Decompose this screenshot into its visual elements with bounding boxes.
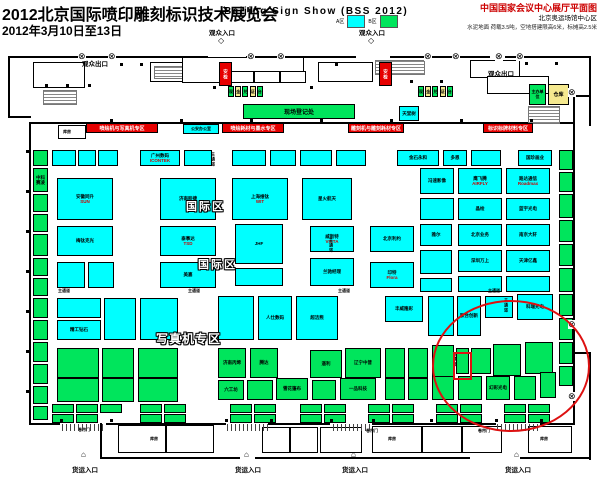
booth: 超洁熊 [296,296,338,340]
booth [33,406,48,420]
booth [33,194,48,212]
structural-column [120,63,123,66]
zone-banner: 雕刻机与雕刻耗材专区 [348,123,404,133]
booth [506,276,550,292]
booth [300,150,332,166]
booth [254,404,276,413]
structural-column [26,230,29,233]
structural-column [26,150,29,153]
structural-column [26,390,29,393]
booth [230,404,252,413]
structural-column [140,63,143,66]
booth: 天津亿鑫 [506,250,550,272]
booth [57,378,99,402]
registration-desk: 兑 [242,86,248,97]
door-symbol-icon: ⊗ [78,52,86,61]
structural-column [66,84,69,87]
structural-column [330,419,333,422]
registration-desk: 金 [425,86,431,97]
booth: 六工坊 [218,380,244,400]
registration-desk: 金 [235,86,241,97]
door-symbol-icon: ⊗ [108,52,116,61]
structural-column [525,62,528,65]
aisle-label: 主通道 [210,152,216,167]
booth [33,214,48,232]
visitor-exit-label: 观众出口 [488,68,514,78]
security-check: 安检 [219,62,232,86]
booth [52,150,76,166]
wall [370,457,470,459]
room [254,71,280,83]
visitor-exit-label: 观众出口 [82,58,108,68]
booth: 星火航天 [302,178,352,220]
booth: 金石永和 [397,150,439,166]
booth [471,150,501,166]
freight-entrance-label: 货运入口 [331,464,379,474]
venue-subtitle: 北京奥运场馆中心区 [539,12,598,22]
door-symbol-icon: ⊗ [277,52,285,61]
aisle-label: 主通道 [488,288,500,294]
room [372,426,422,453]
entrance-diamond-icon: ◇ [218,37,224,45]
booth: 冯速影像 [420,168,454,194]
structural-column [390,119,393,122]
door-symbol-icon: ⊗ [247,52,255,61]
structural-column [320,119,323,122]
booth [102,378,134,402]
booth: 多恩 [443,150,467,166]
booth [232,150,266,166]
booth: 雅尔 [420,224,452,246]
structural-column [110,419,113,422]
room [280,71,306,83]
booth [164,414,186,423]
booth: 印特Flora [370,262,414,288]
booth [102,348,134,378]
registration-desk: 证 [250,86,256,97]
booth [559,268,573,292]
booth [559,220,573,242]
onsite-registration: 现场登记处 [243,104,355,119]
booth [300,404,322,413]
booth [78,150,96,166]
legend-b-label: B区 [368,18,376,25]
wall [100,457,240,459]
zone-label-photo-printer: 写真机专区 [156,330,221,347]
aisle-label: 主通道 [328,238,334,253]
loading-ramp [333,424,373,431]
structural-column [335,63,338,66]
door-symbol-icon: ⊗ [516,52,524,61]
booth [559,194,573,218]
wall [29,423,60,425]
booth [324,414,346,423]
booth [138,378,178,402]
booth [436,414,458,423]
booth [76,414,98,423]
door-symbol-icon: ⊗ [568,88,576,97]
booth: 鹰飞腾AIRFLY [458,168,502,194]
booth: 路达通信Roadmax [506,168,550,194]
registration-desk: 证 [440,86,446,97]
booth [218,296,254,340]
booth: 精工钻石 [57,320,101,340]
security-check: 安检 [379,62,392,86]
structural-column [530,119,533,122]
booth [164,404,186,413]
booth [336,150,366,166]
structural-column [270,419,273,422]
registration-desk: 台 [257,86,263,97]
booth: 国珍画业 [518,150,552,166]
aisle-label: 主通道 [188,288,200,294]
booth [392,414,414,423]
structural-column [213,86,216,89]
structural-column [460,119,463,122]
zone-banner: 喷绘机与写真机专区 [86,123,158,133]
booth [140,414,162,423]
freight-entrance-label: 货运入口 [224,464,272,474]
booth [33,342,48,362]
booth: 中科赛凌 [33,168,48,192]
booth: 泰事达TSD [160,226,216,256]
door-symbol-icon: ⊗ [495,52,503,61]
structural-column [60,419,63,422]
booth: 深圳万上 [458,250,502,272]
wall [573,95,591,97]
booth [559,244,573,266]
booth [184,150,212,166]
loading-ramp [227,424,269,431]
booth [420,278,452,292]
structural-column [372,419,375,422]
wall [390,56,490,58]
booth [104,298,136,340]
structural-column [26,350,29,353]
storeroom-label: 库房 [540,436,548,442]
booth: 辽宁中普 [345,348,381,378]
booth [33,386,48,404]
warehouse: 仓库 [548,84,569,105]
booth [33,320,48,340]
booth [100,404,122,413]
zone-label-international: 国际区 [186,198,225,214]
booth [138,348,178,378]
structural-column [430,419,433,422]
booth [420,198,454,220]
zone-banner: 标识标牌材料专区 [483,123,533,133]
event-dates: 2012年3月10日至13日 [2,22,122,39]
booth: 晶绘 [458,198,502,220]
booth [324,404,346,413]
booth [408,348,428,378]
structural-column [88,84,91,87]
police-office: 公安办公室 [183,124,219,134]
registration-desk: 台 [447,86,453,97]
booth: 丰威隆彩 [385,296,423,322]
structural-column [26,270,29,273]
booth: 广州数码ICONTEK [140,150,180,166]
storeroom-label: 库房 [150,436,158,442]
freight-entrance-icon: ⌂ [514,451,519,459]
organizer-office: 主办单位 [529,84,546,105]
structural-column [26,190,29,193]
booth: 蓝宇光电 [506,198,550,220]
registration-desk: 现 [418,86,424,97]
booth [300,414,322,423]
booth [408,378,428,400]
wall [29,122,31,425]
floor-plan-page: 2012北京国际喷印雕刻标识技术展览会 2012年3月10日至13日 Beiji… [0,0,600,477]
room [422,426,462,453]
booth [559,294,573,316]
wall [268,423,330,425]
booth [392,404,414,413]
booth: 雪花篷布 [276,378,308,400]
booth [230,414,252,423]
freight-entrance-icon: ⌂ [244,451,249,459]
venue-note: 水泥地面 荷载3.5吨，空地搭建限高6米，标摊高2.5米 [467,23,597,31]
wall [8,116,31,118]
structural-column [110,119,113,122]
booth [559,172,573,192]
booth [88,262,114,288]
room [318,62,373,82]
structural-column [250,119,253,122]
registration-desk: 现 [228,86,234,97]
zone-banner: 喷绘耗材与墨水专区 [222,123,284,133]
structural-column [180,119,183,122]
room [118,425,166,453]
zone-label-international: 国际区 [198,256,237,272]
booth [140,404,162,413]
facility-box: 天堂树 [399,106,419,121]
booth [52,414,74,423]
door-symbol-icon: ⊗ [452,52,460,61]
booth: JHF [235,224,283,264]
stairs [43,90,77,105]
booth [420,250,452,274]
booth [33,364,48,384]
registration-desk: 兑 [432,86,438,97]
structural-column [440,80,443,83]
booth: 人仕数码 [258,296,292,340]
door-symbol-icon: ⊗ [424,52,432,61]
booth: 济南丙烯 [218,348,246,378]
booth [98,150,118,166]
loading-ramp [62,424,106,431]
booth: 安徽同升SUN [57,178,113,220]
aisle-label: 主通道 [338,288,350,294]
legend-a-label: A区 [336,18,344,25]
structural-column [410,80,413,83]
freight-entrance-label: 货运入口 [61,464,109,474]
structural-column [26,310,29,313]
booth [559,150,573,170]
booth [247,380,273,400]
structural-column [225,419,228,422]
booth: 腾达 [250,348,278,378]
booth [235,268,283,286]
booth [57,348,99,378]
aisle-label: 主通道 [58,288,70,294]
booth [368,404,390,413]
structural-column [310,86,313,89]
freight-entrance-icon: ⌂ [351,451,356,459]
booth: 南京大轩 [506,224,550,246]
booth: 北京业务 [458,224,502,246]
booth: 遥利 [310,350,342,378]
booth [312,380,336,400]
booth [57,262,85,288]
wall [8,56,10,118]
booth [385,348,405,378]
booth: 梅钛克光 [57,226,113,256]
booth [57,298,101,318]
booth [33,150,48,166]
entrance-diamond-icon: ◇ [368,37,374,45]
booth [33,234,48,256]
structural-column [555,62,558,65]
wall [589,56,591,126]
booth [76,404,98,413]
room [166,425,214,453]
highlight-rect-annotation [453,352,472,380]
booth: 北京利约 [370,226,414,252]
booth [270,150,296,166]
booth [33,258,48,276]
booth [385,378,405,400]
room [290,427,318,453]
wall [255,457,385,459]
booth: 上海维钛WIT [232,178,288,220]
structural-column [45,84,48,87]
booth: 一品科技 [340,378,376,400]
freight-entrance-label: 货运入口 [494,464,542,474]
storeroom-label: 库房 [63,129,71,135]
freight-entrance-icon: ⌂ [81,451,86,459]
room [33,62,85,88]
storeroom-label: 库房 [388,436,396,442]
booth [33,298,48,318]
booth [33,278,48,296]
booth: 兰驰经理 [310,258,354,286]
booth [52,404,74,413]
wall [520,457,590,459]
